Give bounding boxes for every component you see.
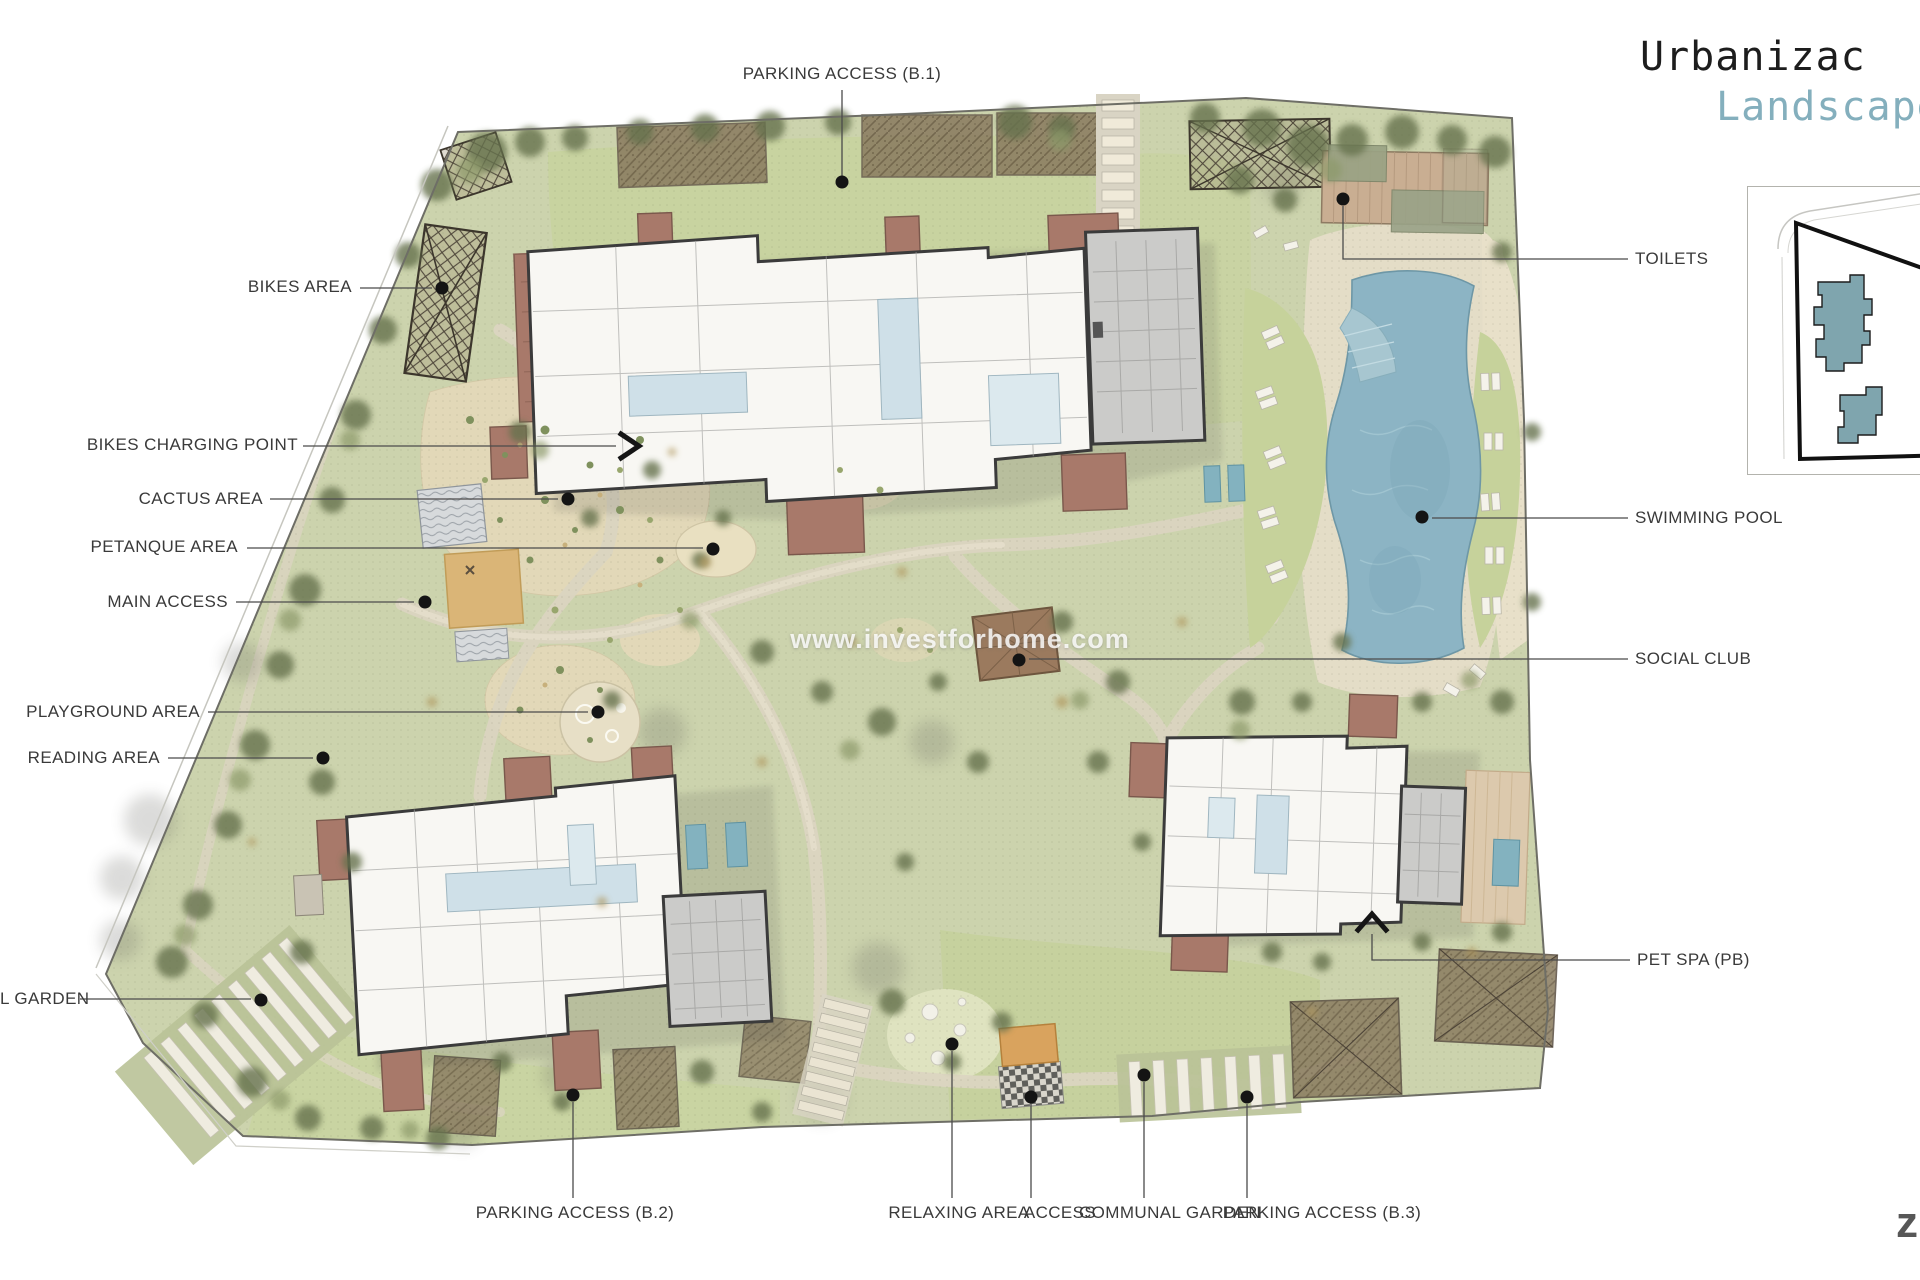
label-pet-spa: PET SPA (PB) bbox=[1637, 950, 1750, 970]
label-petanque-area: PETANQUE AREA bbox=[38, 537, 238, 557]
page-title-line2: Landscape bbox=[1716, 84, 1920, 130]
label-parking-access-b1: PARKING ACCESS (B.1) bbox=[692, 64, 992, 84]
label-social-club: SOCIAL CLUB bbox=[1635, 649, 1751, 669]
label-playground-area: PLAYGROUND AREA bbox=[0, 702, 200, 722]
corner-logo-mark: z bbox=[1896, 1198, 1918, 1248]
inset-key-map bbox=[1747, 186, 1920, 475]
label-reading-area: READING AREA bbox=[0, 748, 160, 768]
label-garden-truncated: L GARDEN bbox=[0, 989, 89, 1009]
site-plan-page: PARKING ACCESS (B.1) BIKES AREA BIKES CH… bbox=[0, 0, 1920, 1280]
watermark: www.investforhome.com bbox=[760, 624, 1160, 655]
label-main-access: MAIN ACCESS bbox=[28, 592, 228, 612]
page-title-line1: Urbanizac bbox=[1640, 34, 1866, 80]
label-bikes-charging-point: BIKES CHARGING POINT bbox=[58, 435, 298, 455]
label-cactus-area: CACTUS AREA bbox=[63, 489, 263, 509]
label-parking-access-b3: PARKING ACCESS (B.3) bbox=[1172, 1203, 1472, 1223]
label-parking-access-b2: PARKING ACCESS (B.2) bbox=[425, 1203, 725, 1223]
label-bikes-area: BIKES AREA bbox=[152, 277, 352, 297]
label-toilets: TOILETS bbox=[1635, 249, 1708, 269]
toilets-deck bbox=[1321, 145, 1488, 234]
label-swimming-pool: SWIMMING POOL bbox=[1635, 508, 1783, 528]
